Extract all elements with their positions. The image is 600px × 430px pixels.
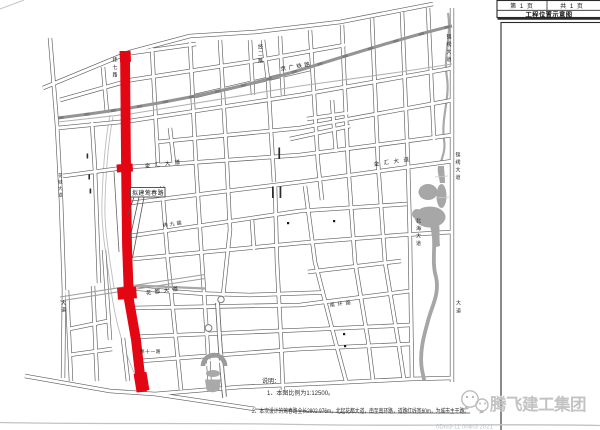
svg-text:锦绣大道: 锦绣大道 (455, 151, 461, 182)
svg-text:拟建莺春路: 拟建莺春路 (132, 189, 164, 197)
svg-text:大道: 大道 (455, 299, 461, 316)
svg-text:0Dm3-11 0nlin3 2021: 0Dm3-11 0nlin3 2021 (436, 425, 494, 430)
svg-text:腾飞建工集团: 腾飞建工集团 (490, 394, 586, 414)
svg-text:第 1 页: 第 1 页 (510, 2, 534, 10)
svg-text:工程位置示意图: 工程位置示意图 (526, 9, 573, 18)
svg-text:北海大道: 北海大道 (415, 217, 421, 248)
svg-text:纬七路: 纬七路 (112, 56, 118, 79)
svg-text:花城大道: 花城大道 (58, 172, 64, 199)
svg-text:说明：: 说明： (262, 377, 280, 385)
svg-text:大道: 大道 (60, 299, 66, 314)
svg-text:1、本图比例为1:12500。: 1、本图比例为1:12500。 (267, 389, 334, 397)
svg-text:经二路: 经二路 (257, 43, 263, 65)
svg-text:共 1 页: 共 1 页 (560, 2, 584, 10)
svg-text:锦绣大道: 锦绣大道 (446, 33, 452, 64)
svg-text:2、本次设计的莺春路全长2802.976m，北起花都大道，南: 2、本次设计的莺春路全长2802.976m，北起花都大道，南至南环路，道路红线宽… (252, 407, 469, 415)
svg-text:纬十一路: 纬十一路 (140, 348, 161, 355)
